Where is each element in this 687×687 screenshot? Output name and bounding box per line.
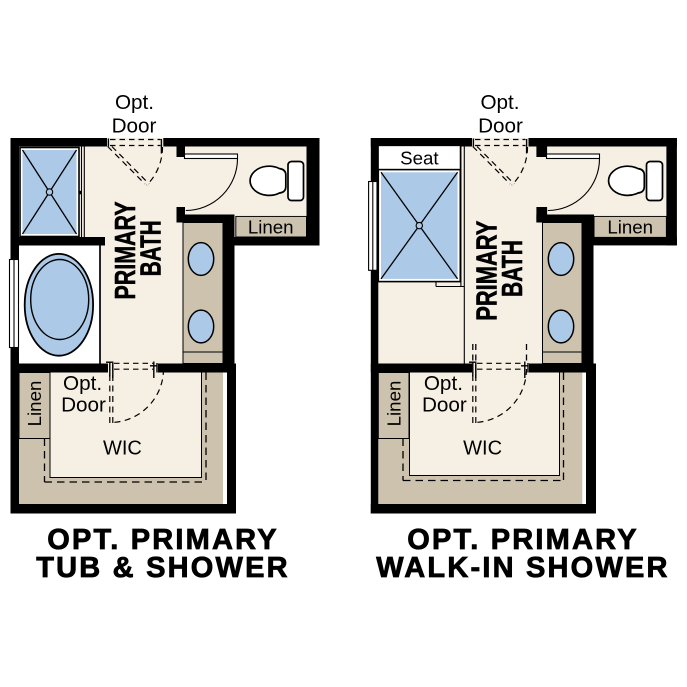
svg-text:Door: Door <box>422 394 467 417</box>
svg-text:Opt.: Opt. <box>63 372 102 395</box>
svg-text:Seat: Seat <box>400 147 439 168</box>
svg-text:WALK-IN SHOWER: WALK-IN SHOWER <box>376 552 669 584</box>
svg-text:TUB & SHOWER: TUB & SHOWER <box>36 552 290 584</box>
svg-text:Door: Door <box>478 115 523 138</box>
svg-text:BATH: BATH <box>136 220 168 276</box>
svg-text:Linen: Linen <box>607 217 653 238</box>
svg-text:Door: Door <box>112 115 157 138</box>
svg-text:Linen: Linen <box>248 217 294 238</box>
svg-text:WIC: WIC <box>463 438 502 460</box>
svg-text:Linen: Linen <box>24 381 45 427</box>
svg-text:Opt.: Opt. <box>115 91 154 114</box>
svg-text:Linen: Linen <box>383 381 404 427</box>
svg-text:Opt.: Opt. <box>424 372 463 395</box>
svg-text:WIC: WIC <box>103 438 142 460</box>
svg-text:Opt.: Opt. <box>480 91 519 114</box>
svg-text:Door: Door <box>61 394 106 417</box>
svg-text:BATH: BATH <box>497 240 529 297</box>
